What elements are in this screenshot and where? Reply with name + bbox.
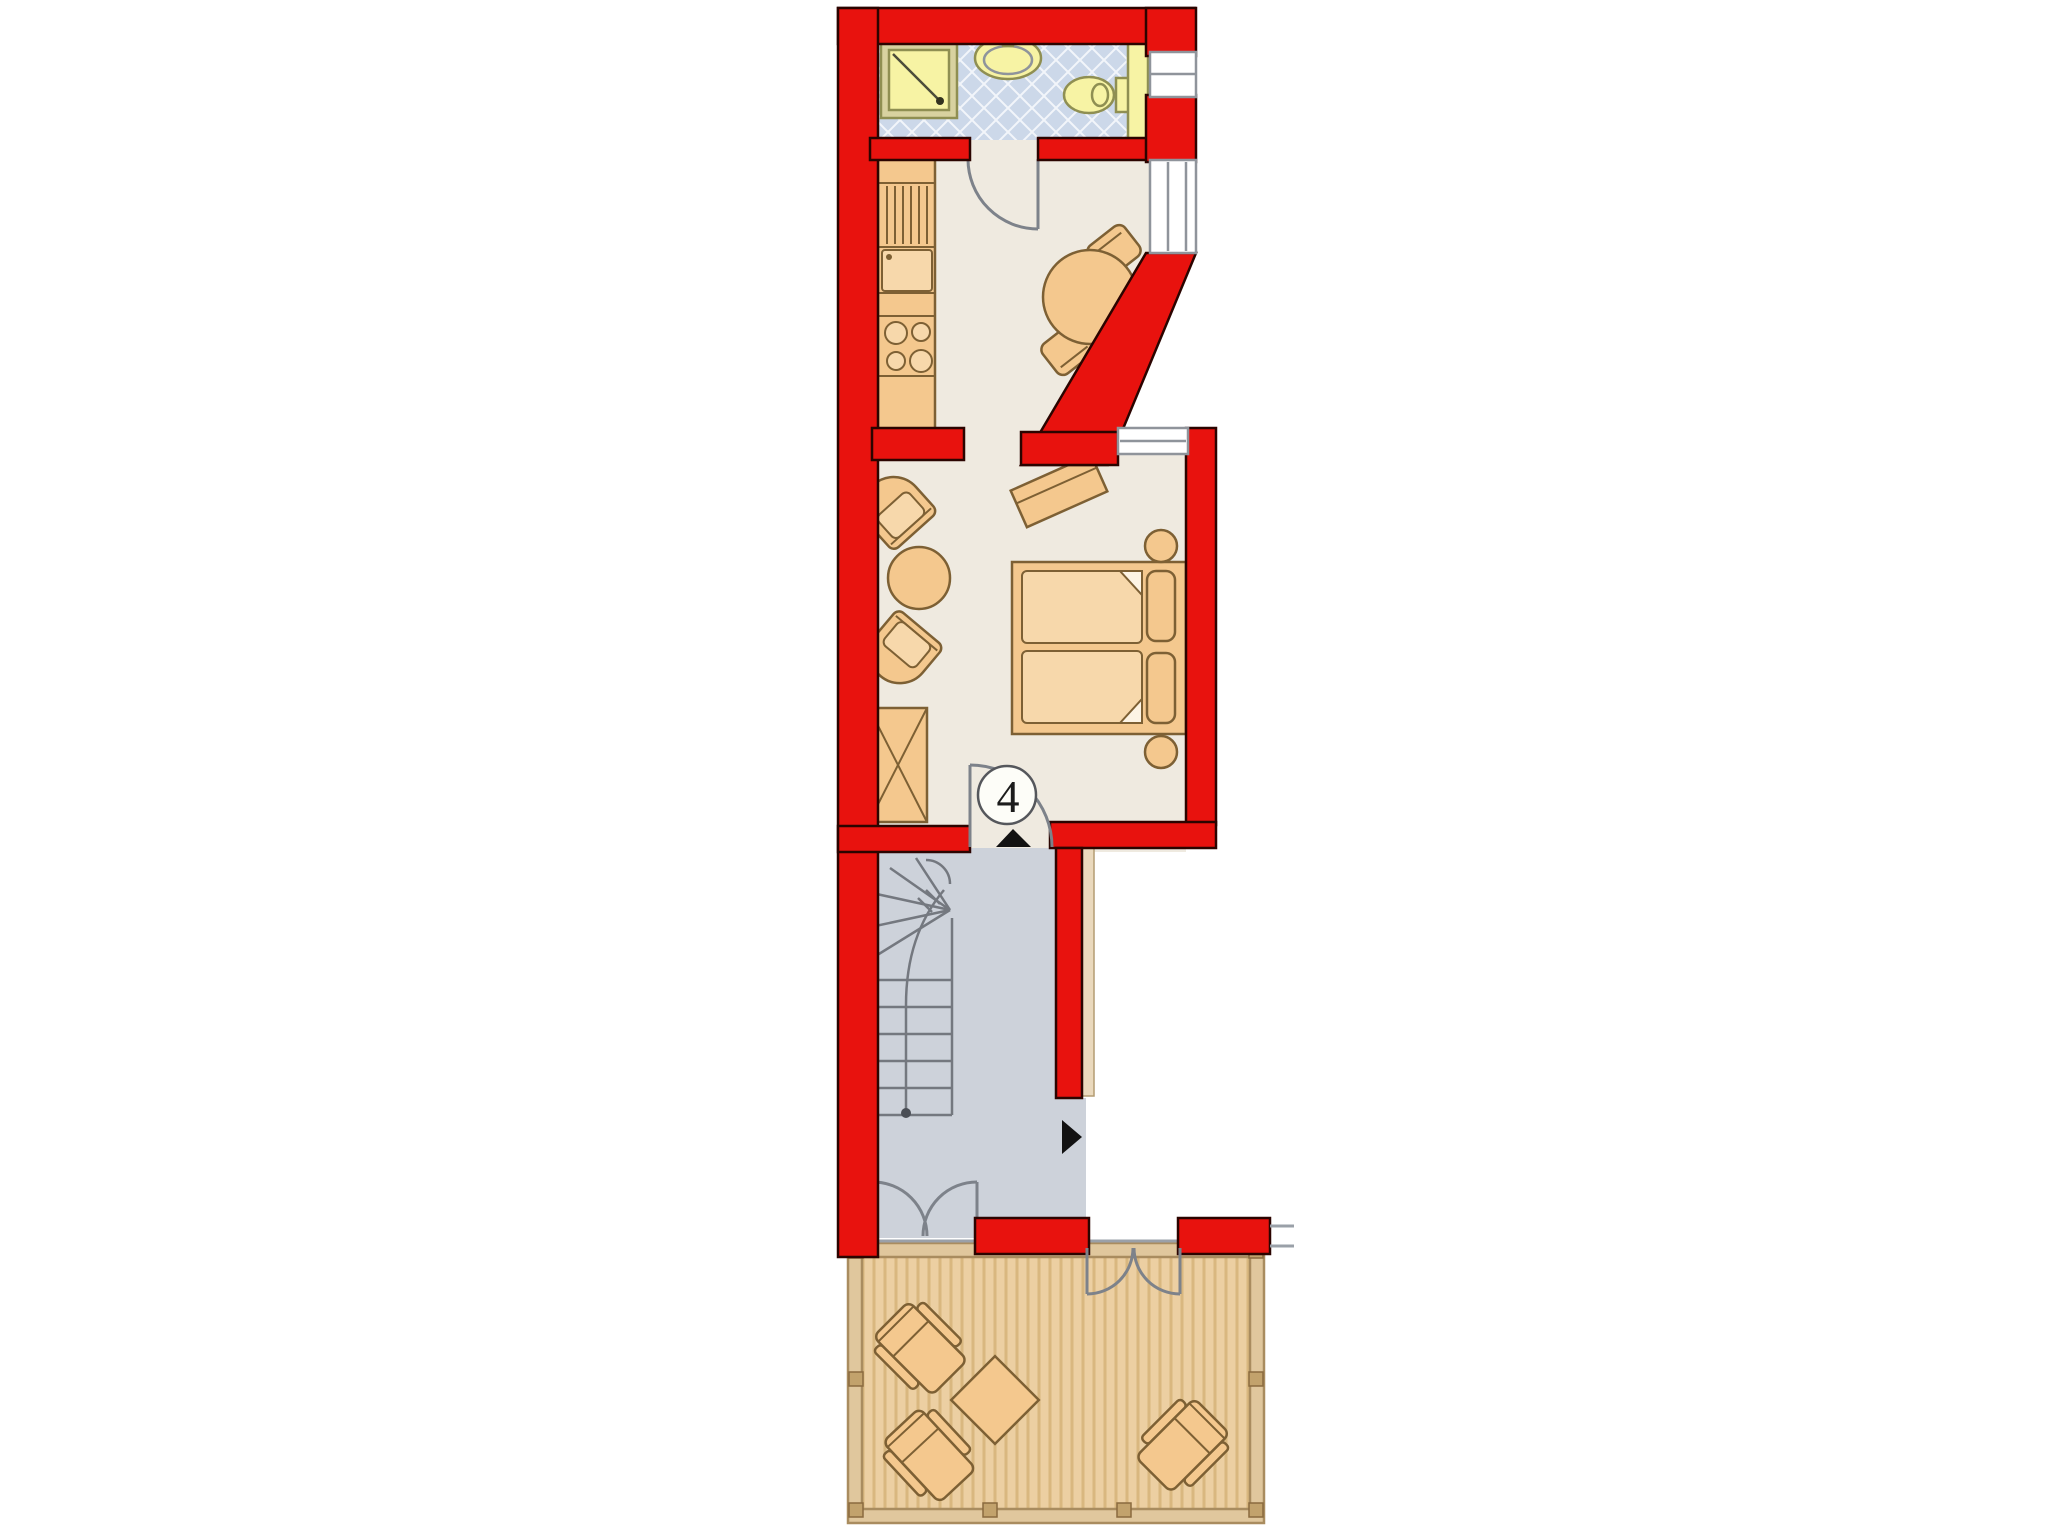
wall-terrace-right [1178, 1218, 1270, 1254]
bedside-stool-1 [1145, 530, 1177, 562]
stair-walking-line-start [901, 1108, 911, 1118]
stairwell-floor [868, 848, 1056, 1238]
floor-plan-page: 4 [0, 0, 2048, 1536]
wall-bedroom-top [1021, 432, 1118, 465]
unit-number-label: 4 [997, 771, 1020, 822]
toilet-seat [1092, 84, 1108, 106]
mattress-2 [1022, 651, 1142, 723]
shower-drain [936, 97, 944, 105]
side-table [888, 547, 950, 609]
wall-kitchen-stub [872, 428, 964, 460]
neighbor-wall-strip [1082, 848, 1094, 1096]
wall-top [838, 8, 1195, 44]
wall-left [838, 8, 878, 1257]
terrace [848, 1241, 1264, 1523]
bedside-stool-2 [1145, 736, 1177, 768]
wall-bath-bottom-left [870, 138, 970, 160]
dishwasher-handle [886, 254, 892, 260]
wall-terrace-mid [975, 1218, 1089, 1254]
wall-right-top [1146, 8, 1196, 56]
wall-bedroom-right [1186, 428, 1216, 825]
wall-bedroom-bottom-step [1050, 822, 1216, 848]
pillow-2 [1147, 653, 1175, 723]
wall-bath-bottom-right [1038, 138, 1150, 160]
wall-right-mid [1146, 95, 1196, 162]
pillow-1 [1147, 571, 1175, 641]
neighbor-wall-stub-lines [1270, 1226, 1294, 1246]
wall-stair-right [1056, 848, 1082, 1098]
wall-entry [838, 826, 970, 852]
floor-plan-drawing: 4 [0, 0, 2048, 1536]
window-kitchen-lower [1150, 160, 1196, 253]
mattress-1 [1022, 571, 1142, 643]
